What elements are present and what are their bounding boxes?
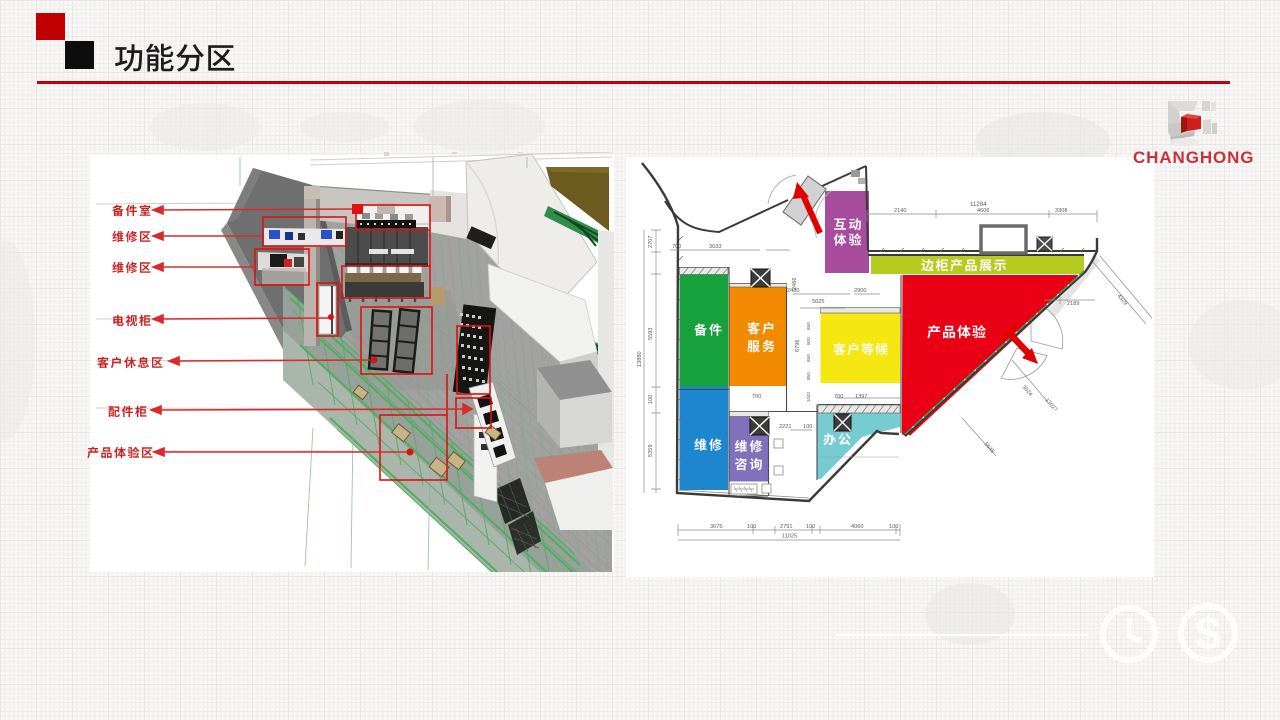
svg-text:850: 850 (806, 372, 811, 380)
svg-text:5359: 5359 (648, 445, 654, 457)
svg-text:3675: 3675 (710, 524, 722, 530)
svg-text:2221: 2221 (779, 424, 791, 430)
svg-text:100: 100 (747, 524, 756, 530)
svg-text:2900: 2900 (854, 288, 866, 294)
svg-text:800: 800 (806, 337, 811, 345)
svg-text:1042: 1042 (806, 391, 811, 402)
svg-text:3633: 3633 (709, 244, 721, 250)
svg-text:2707: 2707 (648, 236, 654, 248)
svg-text:4606: 4606 (977, 208, 989, 214)
svg-text:2140: 2140 (894, 208, 906, 214)
svg-text:2189: 2189 (1067, 301, 1079, 307)
svg-text:4329: 4329 (1115, 293, 1128, 306)
svg-text:13027: 13027 (1043, 397, 1058, 413)
svg-text:100: 100 (889, 524, 898, 530)
svg-text:700: 700 (752, 394, 761, 400)
svg-text:100: 100 (806, 524, 815, 530)
svg-text:700: 700 (834, 394, 843, 400)
svg-text:5593: 5593 (648, 328, 654, 340)
svg-text:650: 650 (806, 354, 811, 362)
svg-text:11284: 11284 (970, 201, 987, 208)
svg-text:CHANGHONG: CHANGHONG (1133, 148, 1254, 167)
svg-text:650: 650 (806, 322, 811, 330)
svg-text:3308: 3308 (1055, 208, 1067, 214)
svg-text:4060: 4060 (851, 524, 863, 530)
svg-text:11025: 11025 (782, 534, 797, 540)
svg-text:100: 100 (648, 395, 654, 404)
svg-text:2466: 2466 (792, 278, 798, 290)
svg-text:6796: 6796 (795, 340, 801, 352)
svg-text:$: $ (1195, 607, 1221, 659)
svg-text:1397: 1397 (855, 394, 867, 400)
svg-text:13880: 13880 (637, 351, 643, 367)
svg-text:5025: 5025 (812, 299, 824, 305)
svg-text:100: 100 (803, 424, 812, 430)
svg-text:3024: 3024 (1020, 384, 1033, 397)
svg-text:700: 700 (672, 244, 681, 250)
svg-text:2791: 2791 (780, 524, 792, 530)
